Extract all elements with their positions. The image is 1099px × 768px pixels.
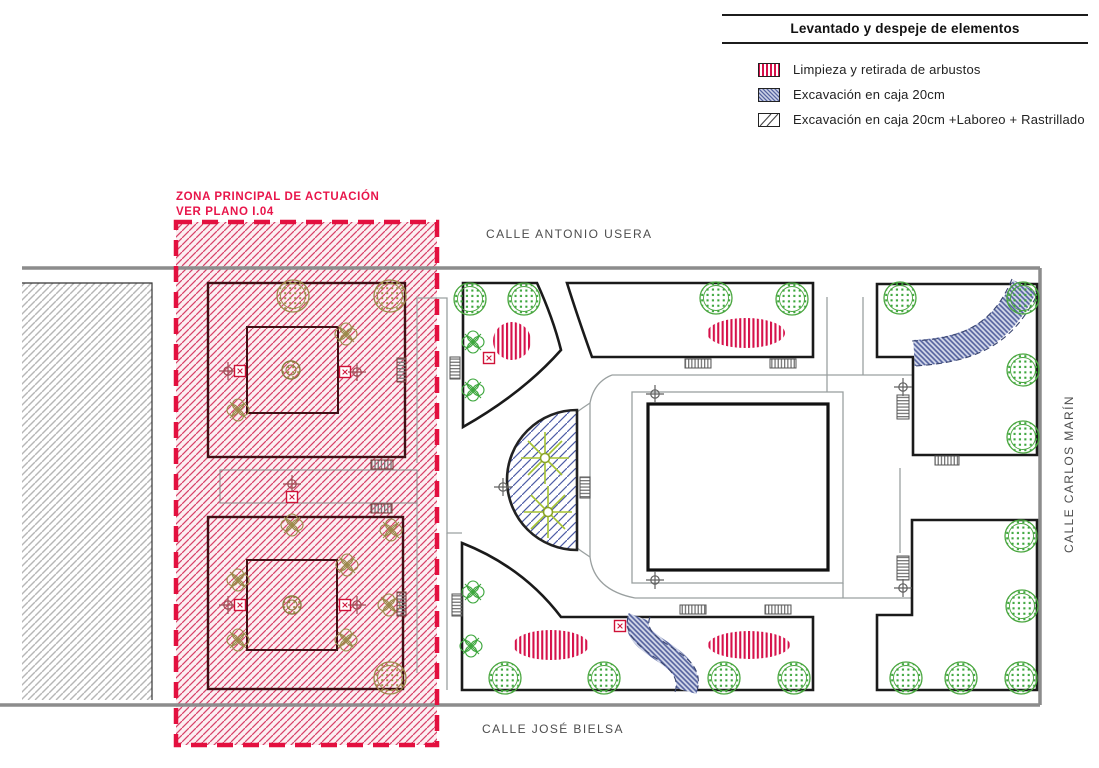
- zone-annotation-line2: VER PLANO I.04: [176, 205, 379, 220]
- street-label-right: CALLE CARLOS MARÍN: [1062, 395, 1076, 553]
- legend-title: Levantado y despeje de elementos: [722, 16, 1088, 42]
- legend-item-label: Limpieza y retirada de arbustos: [793, 62, 981, 77]
- street-label-top: CALLE ANTONIO USERA: [486, 227, 652, 241]
- zone-annotation: ZONA PRINCIPAL DE ACTUACIÓN VER PLANO I.…: [176, 190, 379, 220]
- legend-item-excavation: Excavación en caja 20cm: [722, 82, 1088, 107]
- legend-item-label: Excavación en caja 20cm: [793, 87, 945, 102]
- existing-building-hatched: [22, 283, 152, 700]
- semicircle-area: [507, 410, 577, 550]
- legend-items: Limpieza y retirada de arbustos Excavaci…: [722, 57, 1088, 132]
- blue-hatch-swatch-icon: [758, 88, 780, 102]
- legend-item-shrub-removal: Limpieza y retirada de arbustos: [722, 57, 1088, 82]
- legend-panel: Levantado y despeje de elementos Limpiez…: [722, 14, 1088, 132]
- pink-stripes-swatch-icon: [758, 63, 780, 77]
- central-square: [648, 404, 828, 570]
- zone-annotation-line1: ZONA PRINCIPAL DE ACTUACIÓN: [176, 190, 379, 205]
- plan-canvas: Levantado y despeje de elementos Limpiez…: [0, 0, 1099, 768]
- legend-rule-bottom: [722, 42, 1088, 44]
- street-label-bottom: CALLE JOSÉ BIELSA: [482, 722, 624, 736]
- white-diagonal-swatch-icon: [758, 113, 780, 127]
- legend-item-excavation-laboreo: Excavación en caja 20cm +Laboreo + Rastr…: [722, 107, 1088, 132]
- legend-item-label: Excavación en caja 20cm +Laboreo + Rastr…: [793, 112, 1085, 127]
